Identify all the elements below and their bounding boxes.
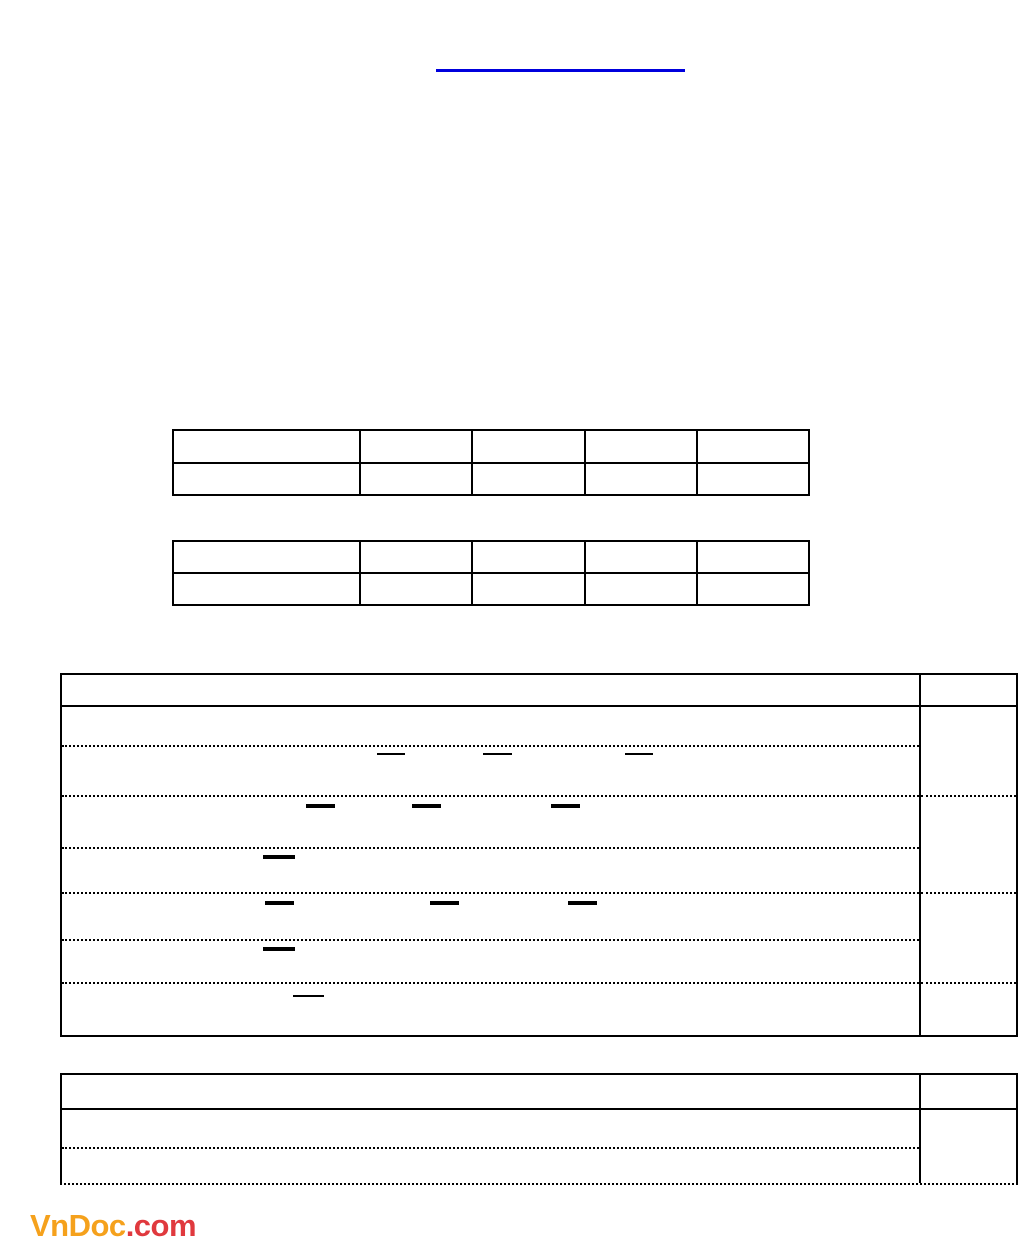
table-row: [174, 542, 808, 572]
table-cell: [359, 431, 471, 462]
question-row: [62, 941, 919, 984]
table-cell: [359, 574, 471, 604]
table-cell: [359, 542, 471, 572]
answer-table-1: [172, 429, 810, 496]
fraction-bar: [263, 855, 295, 859]
worksheet-page: VnDoc.com: [0, 0, 1021, 1248]
fraction-bar: [551, 804, 580, 808]
exercise-table-2-header: [62, 1075, 1016, 1110]
points-cell: [921, 707, 1016, 797]
table-cell: [174, 574, 359, 604]
table-cell: [174, 431, 359, 462]
exercise-table-body: [62, 707, 1016, 1035]
header-cell: [921, 675, 1016, 705]
table-cell: [471, 464, 584, 494]
vndoc-logo: VnDoc.com: [30, 1209, 196, 1243]
table-row: [174, 462, 808, 494]
fraction-bar: [306, 804, 335, 808]
table-cell: [174, 542, 359, 572]
header-cell: [62, 675, 921, 705]
vndoc-logo-brand: VnDoc: [30, 1208, 126, 1243]
fraction-bar: [430, 901, 459, 905]
exercise-table: [60, 673, 1018, 1037]
table-cell: [471, 542, 584, 572]
fraction-bar: [263, 947, 295, 951]
exercise-table-2-body: [62, 1110, 1016, 1183]
table-cell: [584, 464, 696, 494]
question-row: [62, 707, 919, 747]
table-cell: [359, 464, 471, 494]
exercise-points-column: [921, 1110, 1016, 1183]
fraction-bar: [625, 753, 653, 755]
table-cell: [696, 464, 808, 494]
fraction-bar: [265, 901, 294, 905]
table-cell: [584, 574, 696, 604]
table-cell: [174, 464, 359, 494]
question-row: [62, 849, 919, 894]
hyperlink-underline[interactable]: [436, 69, 685, 72]
question-row: [62, 797, 919, 849]
table-cell: [584, 431, 696, 462]
exercise-question-column: [62, 707, 921, 1035]
answer-table-2: [172, 540, 810, 606]
fraction-bar: [412, 804, 441, 808]
table-row: [174, 431, 808, 462]
question-row: [62, 984, 919, 1035]
points-cell: [921, 797, 1016, 894]
question-row: [62, 1149, 919, 1183]
header-cell: [62, 1075, 921, 1108]
vndoc-logo-suffix: .com: [126, 1208, 196, 1243]
exercise-table-header: [62, 675, 1016, 707]
table-cell: [696, 431, 808, 462]
fraction-bar: [293, 995, 324, 997]
header-cell: [921, 1075, 1016, 1108]
table-cell: [584, 542, 696, 572]
question-row: [62, 1110, 919, 1149]
fraction-bar: [483, 753, 512, 755]
table-row: [174, 572, 808, 604]
fraction-bar: [568, 901, 597, 905]
table-cell: [696, 574, 808, 604]
exercise-points-column: [921, 707, 1016, 1035]
question-row: [62, 894, 919, 941]
points-cell: [921, 984, 1016, 1035]
exercise-table-2: [60, 1073, 1018, 1185]
table-cell: [696, 542, 808, 572]
table-cell: [471, 574, 584, 604]
exercise-question-column: [62, 1110, 921, 1183]
fraction-bar: [377, 753, 405, 755]
table-cell: [471, 431, 584, 462]
points-cell: [921, 894, 1016, 984]
